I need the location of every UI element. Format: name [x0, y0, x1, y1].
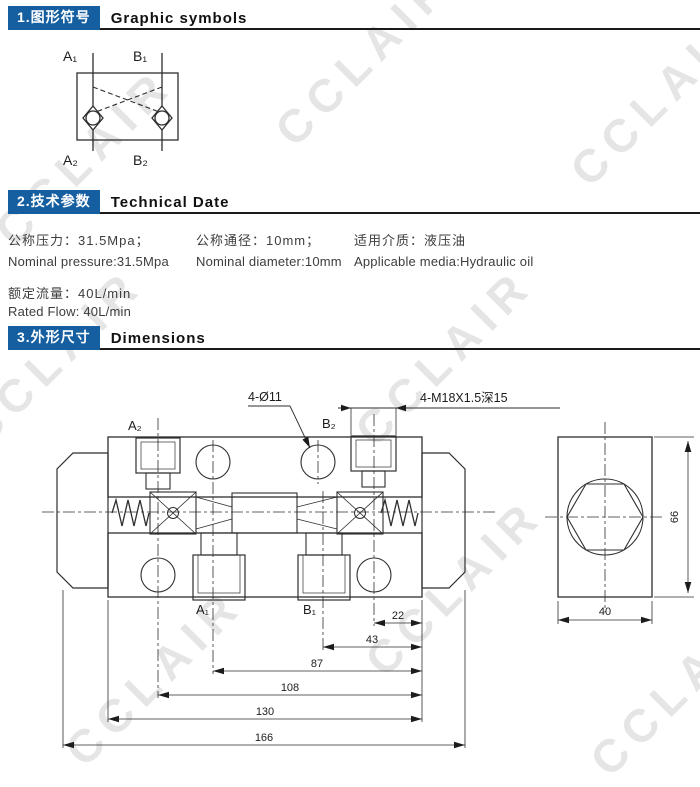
section-3-title-zh: 3.外形尺寸: [8, 326, 100, 350]
section-1-header: 1.图形符号 Graphic symbols: [0, 6, 700, 30]
spring-right: [381, 500, 418, 526]
param-flow: 额定流量：40L/min Rated Flow: 40L/min: [8, 283, 700, 319]
spring-left: [112, 500, 149, 526]
param-media: 适用介质：液压油 Applicable media:Hydraulic oil: [354, 230, 700, 269]
dim-166: 166: [255, 732, 273, 744]
param-flow-zh: 额定流量：40L/min: [8, 283, 700, 302]
param-diameter-en: Nominal diameter:10mm: [196, 254, 354, 269]
label-port-a1: A₁: [196, 602, 210, 617]
section-1-title-en: Graphic symbols: [100, 6, 700, 30]
check-valve-right: [337, 492, 383, 534]
param-pressure-zh: 公称压力：31.5Mpa；: [8, 230, 196, 249]
label-port-a2: A₂: [128, 418, 142, 433]
dim-22: 22: [392, 610, 404, 622]
section-2-title-en: Technical Date: [100, 190, 700, 214]
symbol-port-a2: A₂: [63, 152, 78, 168]
center-spool: [196, 493, 337, 533]
dimensions-drawing-svg: A₂ B₂ A₁ B₁ 4-Ø11 4-M18X1.5深15: [0, 356, 700, 766]
hydraulic-symbol-svg: A₁ B₁ A₂ B₂: [55, 45, 295, 180]
param-pressure-en: Nominal pressure:31.5Mpa: [8, 254, 196, 269]
side-view: 40 66: [545, 422, 694, 624]
section-2-header: 2.技术参数 Technical Date: [0, 190, 700, 214]
check-valve-left: [150, 492, 196, 534]
label-port-b2: B₂: [322, 416, 336, 431]
callout-holes-label: 4-Ø11: [248, 390, 282, 404]
param-pressure: 公称压力：31.5Mpa； Nominal pressure:31.5Mpa: [8, 230, 196, 269]
dim-108: 108: [281, 682, 299, 694]
section-3-title-en: Dimensions: [100, 326, 700, 350]
callout-thread: 4-M18X1.5深15: [338, 391, 560, 435]
technical-parameters: 公称压力：31.5Mpa； Nominal pressure:31.5Mpa 公…: [8, 230, 700, 319]
param-diameter-zh: 公称通径：10mm；: [196, 230, 354, 249]
dim-66: 66: [669, 511, 681, 523]
symbol-port-b2: B₂: [133, 152, 148, 168]
callout-holes: 4-Ø11: [248, 390, 310, 448]
port-plug-b2: [351, 436, 396, 487]
param-media-zh: 适用介质：液压油: [354, 230, 700, 249]
graphic-symbol-diagram: A₁ B₁ A₂ B₂: [55, 45, 295, 185]
label-port-b1: B₁: [303, 602, 317, 617]
centerlines: [42, 414, 496, 698]
section-1-title-zh: 1.图形符号: [8, 6, 100, 30]
section-2-title-zh: 2.技术参数: [8, 190, 100, 214]
dimension-lines: [63, 590, 465, 748]
dim-43: 43: [366, 634, 378, 646]
main-section-view: A₂ B₂ A₁ B₁ 4-Ø11 4-M18X1.5深15: [42, 390, 560, 748]
callout-thread-label: 4-M18X1.5深15: [420, 391, 508, 405]
param-media-en: Applicable media:Hydraulic oil: [354, 254, 700, 269]
symbol-port-b1: B₁: [133, 48, 147, 64]
dimensions-drawing: A₂ B₂ A₁ B₁ 4-Ø11 4-M18X1.5深15: [0, 356, 700, 771]
dim-40: 40: [599, 606, 611, 618]
dim-87: 87: [311, 658, 323, 670]
dim-130: 130: [256, 706, 274, 718]
param-flow-en: Rated Flow: 40L/min: [8, 304, 700, 319]
param-diameter: 公称通径：10mm； Nominal diameter:10mm: [196, 230, 354, 269]
section-3-header: 3.外形尺寸 Dimensions: [0, 326, 700, 350]
port-b1: [298, 533, 350, 600]
symbol-port-a1: A₁: [63, 48, 77, 64]
dimension-labels: 22 43 87 108 130 166: [255, 610, 404, 744]
port-a1: [193, 533, 245, 600]
